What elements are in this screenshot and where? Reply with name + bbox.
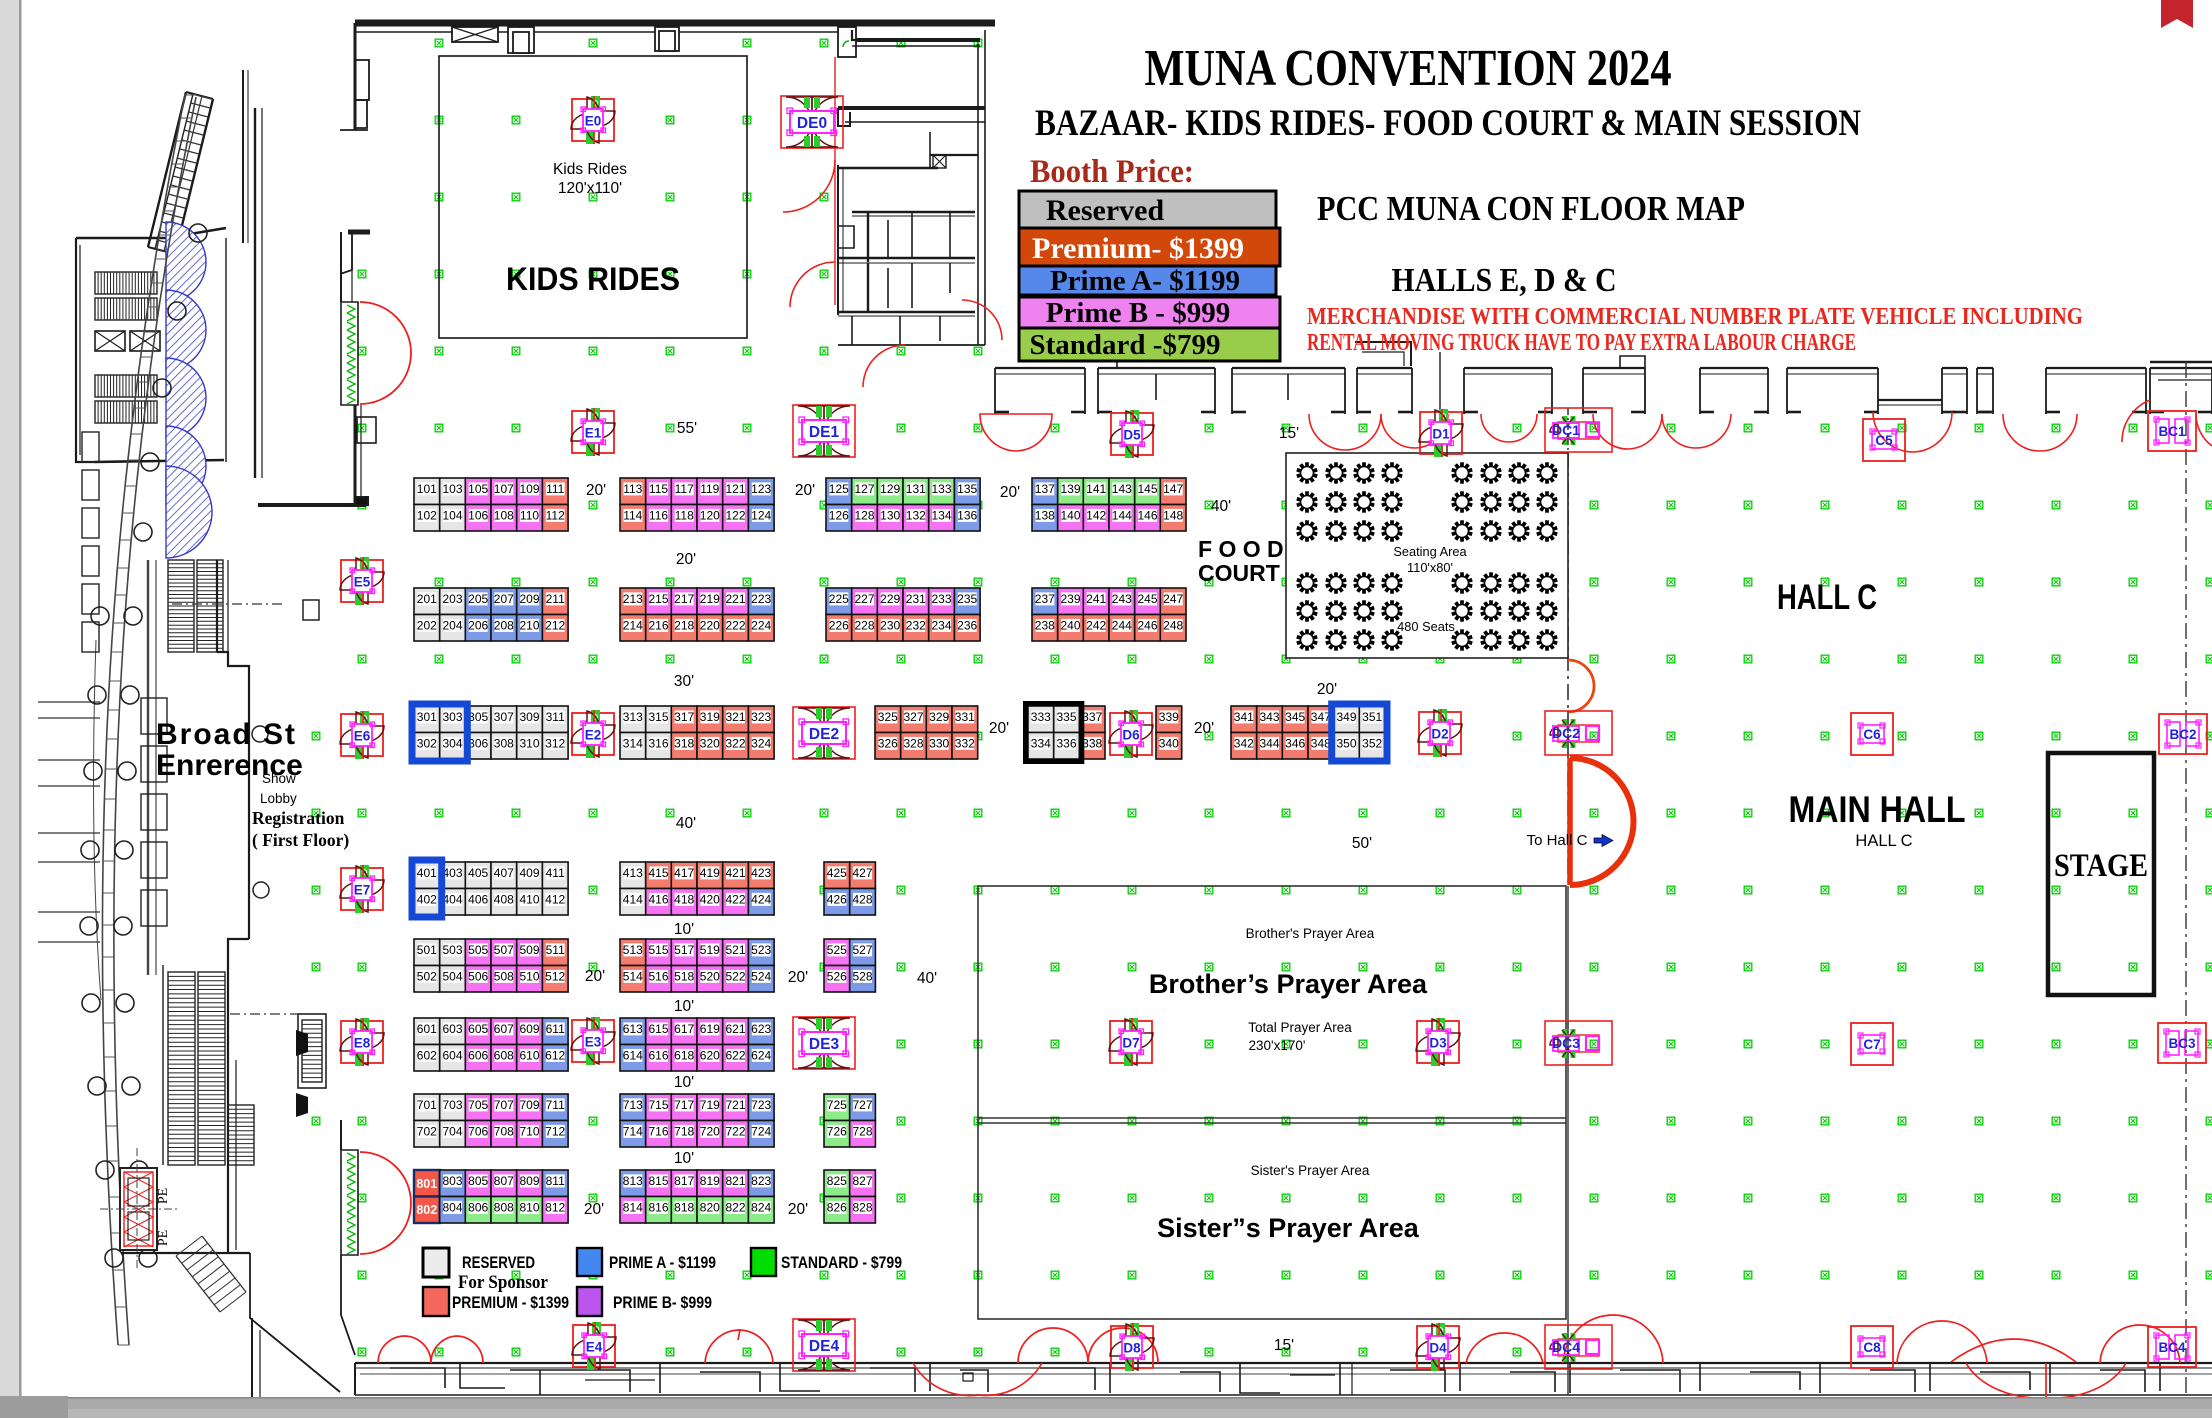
svg-text:341: 341	[1234, 710, 1254, 724]
svg-text:509: 509	[519, 943, 539, 957]
svg-text:134: 134	[931, 508, 951, 522]
svg-text:218: 218	[674, 618, 694, 632]
svg-text:Registration: Registration	[252, 808, 345, 828]
svg-text:823: 823	[751, 1174, 771, 1188]
svg-text:MAIN HALL: MAIN HALL	[1789, 789, 1966, 830]
svg-text:201: 201	[417, 592, 437, 606]
svg-text:507: 507	[494, 943, 514, 957]
svg-text:501: 501	[417, 943, 437, 957]
svg-text:DC1: DC1	[1552, 422, 1580, 438]
svg-text:345: 345	[1285, 710, 1305, 724]
svg-text:E5: E5	[354, 575, 371, 590]
svg-text:206: 206	[468, 618, 488, 632]
svg-text:D8: D8	[1123, 1341, 1141, 1356]
svg-text:805: 805	[468, 1174, 488, 1188]
svg-text:624: 624	[751, 1048, 771, 1062]
svg-text:110: 110	[520, 508, 539, 522]
svg-text:120'x110': 120'x110'	[558, 180, 622, 197]
svg-text:132: 132	[906, 508, 926, 522]
svg-text:602: 602	[417, 1048, 437, 1062]
svg-text:314: 314	[623, 736, 643, 750]
svg-text:316: 316	[648, 736, 668, 750]
svg-text:Seating Area: Seating Area	[1393, 544, 1467, 559]
svg-text:426: 426	[827, 892, 847, 906]
svg-text:312: 312	[545, 736, 565, 750]
svg-text:50': 50'	[1352, 835, 1372, 852]
svg-text:205: 205	[468, 592, 488, 606]
svg-text:143: 143	[1112, 482, 1132, 496]
svg-text:114: 114	[623, 508, 642, 522]
svg-text:106: 106	[468, 508, 488, 522]
svg-text:715: 715	[648, 1098, 668, 1112]
svg-text:826: 826	[827, 1200, 847, 1214]
svg-text:Total Prayer Area: Total Prayer Area	[1248, 1020, 1352, 1035]
svg-text:244: 244	[1112, 618, 1132, 632]
svg-text:410: 410	[519, 892, 539, 906]
svg-text:121: 121	[725, 482, 745, 496]
svg-text:20': 20'	[584, 1201, 604, 1218]
svg-text:10': 10'	[674, 921, 694, 938]
svg-text:D2: D2	[1431, 727, 1448, 742]
svg-text:608: 608	[494, 1048, 514, 1062]
svg-text:135: 135	[957, 482, 977, 496]
svg-text:D1: D1	[1432, 427, 1450, 442]
svg-text:20': 20'	[795, 482, 815, 499]
svg-text:203: 203	[442, 592, 462, 606]
svg-text:601: 601	[417, 1022, 437, 1036]
svg-text:20': 20'	[1194, 720, 1214, 737]
svg-text:220: 220	[700, 618, 720, 632]
svg-text:225: 225	[829, 592, 849, 606]
svg-text:521: 521	[725, 943, 745, 957]
svg-text:E1: E1	[585, 426, 602, 441]
svg-text:505: 505	[468, 943, 488, 957]
svg-text:619: 619	[700, 1022, 720, 1036]
svg-text:409: 409	[519, 866, 539, 880]
svg-text:239: 239	[1060, 592, 1080, 606]
svg-text:480 Seats: 480 Seats	[1397, 619, 1455, 634]
svg-text:815: 815	[648, 1174, 668, 1188]
svg-text:403: 403	[442, 866, 462, 880]
svg-text:714: 714	[623, 1124, 643, 1138]
svg-text:512: 512	[545, 969, 565, 983]
svg-text:425: 425	[827, 866, 847, 880]
svg-text:MERCHANDISE WITH COMMERCIAL: MERCHANDISE WITH COMMERCIAL NUMBER PLATE…	[1307, 304, 2083, 330]
svg-text:806: 806	[468, 1200, 488, 1214]
svg-text:PRIME B- $999: PRIME B- $999	[613, 1293, 712, 1312]
svg-text:725: 725	[827, 1098, 847, 1112]
svg-text:709: 709	[519, 1098, 539, 1112]
svg-text:405: 405	[468, 866, 488, 880]
svg-text:423: 423	[751, 866, 771, 880]
svg-text:226: 226	[829, 618, 849, 632]
svg-text:510: 510	[519, 969, 539, 983]
svg-text:710: 710	[519, 1124, 539, 1138]
svg-text:BC3: BC3	[2168, 1036, 2195, 1051]
svg-text:20': 20'	[1000, 484, 1020, 501]
svg-text:614: 614	[623, 1048, 643, 1062]
svg-text:412: 412	[545, 892, 565, 906]
svg-text:211: 211	[546, 592, 565, 606]
svg-text:706: 706	[468, 1124, 488, 1138]
svg-text:342: 342	[1234, 736, 1254, 750]
svg-text:216: 216	[648, 618, 668, 632]
svg-text:615: 615	[648, 1022, 668, 1036]
svg-text:719: 719	[700, 1098, 720, 1112]
svg-text:202: 202	[417, 618, 437, 632]
svg-text:126: 126	[829, 508, 849, 522]
svg-text:503: 503	[442, 943, 462, 957]
svg-text:20': 20'	[676, 551, 696, 568]
svg-text:508: 508	[494, 969, 514, 983]
svg-text:C5: C5	[1875, 433, 1893, 448]
svg-text:232: 232	[906, 618, 926, 632]
svg-text:331: 331	[955, 710, 975, 724]
svg-text:511: 511	[546, 943, 565, 957]
svg-text:231: 231	[906, 592, 926, 606]
svg-text:20': 20'	[989, 720, 1009, 737]
svg-text:247: 247	[1163, 592, 1183, 606]
svg-text:321: 321	[725, 710, 745, 724]
svg-text:828: 828	[852, 1200, 872, 1214]
svg-text:108: 108	[494, 508, 514, 522]
svg-text:707: 707	[494, 1098, 514, 1112]
svg-text:303: 303	[442, 710, 462, 724]
svg-text:606: 606	[468, 1048, 488, 1062]
svg-text:711: 711	[546, 1098, 565, 1112]
svg-text:224: 224	[751, 618, 771, 632]
svg-text:BC2: BC2	[2169, 727, 2196, 742]
svg-text:616: 616	[648, 1048, 668, 1062]
svg-text:613: 613	[623, 1022, 643, 1036]
svg-text:BAZAAR- KIDS RIDES- FOOD COURT: BAZAAR- KIDS RIDES- FOOD COURT & MAIN SE…	[1035, 103, 1861, 144]
svg-text:BC1: BC1	[2158, 424, 2185, 439]
svg-text:528: 528	[852, 969, 872, 983]
svg-text:820: 820	[700, 1200, 720, 1214]
svg-text:MUNA CONVENTION 2024: MUNA CONVENTION 2024	[1145, 40, 1672, 97]
svg-text:705: 705	[468, 1098, 488, 1112]
svg-text:506: 506	[468, 969, 488, 983]
svg-text:PRIME A - $1199: PRIME A - $1199	[609, 1253, 716, 1272]
svg-text:227: 227	[854, 592, 874, 606]
svg-text:817: 817	[674, 1174, 694, 1188]
svg-text:236: 236	[957, 618, 977, 632]
svg-text:605: 605	[468, 1022, 488, 1036]
svg-text:607: 607	[494, 1022, 514, 1036]
svg-text:230: 230	[880, 618, 900, 632]
svg-text:318: 318	[674, 736, 694, 750]
svg-text:40': 40'	[1211, 498, 1231, 515]
svg-text:237: 237	[1035, 592, 1055, 606]
svg-text:333: 333	[1031, 710, 1051, 724]
svg-text:Prime B - $999: Prime B - $999	[1046, 297, 1230, 329]
svg-text:401: 401	[417, 866, 437, 880]
svg-text:128: 128	[854, 508, 874, 522]
svg-text:DC3: DC3	[1552, 1035, 1580, 1051]
svg-text:Standard -$799: Standard -$799	[1030, 329, 1221, 361]
svg-text:326: 326	[878, 736, 898, 750]
svg-text:144: 144	[1112, 508, 1132, 522]
svg-text:351: 351	[1362, 710, 1382, 724]
svg-text:HALL C: HALL C	[1777, 578, 1877, 617]
svg-text:712: 712	[545, 1124, 565, 1138]
svg-text:824: 824	[751, 1200, 771, 1214]
svg-text:526: 526	[827, 969, 847, 983]
svg-text:701: 701	[417, 1098, 437, 1112]
svg-text:352: 352	[1362, 736, 1382, 750]
svg-text:402: 402	[417, 892, 437, 906]
svg-text:319: 319	[700, 710, 720, 724]
svg-text:221: 221	[725, 592, 745, 606]
svg-text:DE1: DE1	[809, 424, 840, 441]
svg-text:810: 810	[519, 1200, 539, 1214]
svg-text:320: 320	[700, 736, 720, 750]
svg-text:726: 726	[827, 1124, 847, 1138]
svg-text:123: 123	[751, 482, 771, 496]
svg-text:113: 113	[623, 482, 642, 496]
svg-text:PE: PE	[156, 1230, 171, 1246]
svg-text:20': 20'	[788, 969, 808, 986]
svg-text:147: 147	[1163, 482, 1183, 496]
svg-text:PE: PE	[156, 1188, 171, 1204]
svg-text:215: 215	[648, 592, 668, 606]
svg-text:803: 803	[442, 1174, 462, 1188]
svg-text:20': 20'	[585, 968, 605, 985]
svg-text:416: 416	[648, 892, 668, 906]
svg-text:Brother’s Prayer Area: Brother’s Prayer Area	[1149, 969, 1428, 999]
svg-text:133: 133	[931, 482, 951, 496]
svg-text:230'x170': 230'x170'	[1249, 1038, 1306, 1053]
svg-text:142: 142	[1086, 508, 1106, 522]
svg-text:136: 136	[957, 508, 977, 522]
svg-text:C8: C8	[1863, 1340, 1881, 1355]
svg-text:D6: D6	[1122, 728, 1140, 743]
svg-text:408: 408	[494, 892, 514, 906]
svg-text:415: 415	[648, 866, 668, 880]
svg-text:704: 704	[442, 1124, 462, 1138]
svg-text:421: 421	[725, 866, 745, 880]
svg-text:527: 527	[852, 943, 872, 957]
svg-text:Sister's Prayer Area: Sister's Prayer Area	[1251, 1163, 1370, 1178]
svg-text:HALLS E, D & C: HALLS E, D & C	[1392, 262, 1617, 299]
svg-text:10': 10'	[674, 998, 694, 1015]
svg-text:130: 130	[880, 508, 900, 522]
svg-text:20': 20'	[586, 482, 606, 499]
svg-text:414: 414	[623, 892, 643, 906]
svg-text:702: 702	[417, 1124, 437, 1138]
svg-text:816: 816	[648, 1200, 668, 1214]
svg-text:808: 808	[494, 1200, 514, 1214]
svg-text:248: 248	[1163, 618, 1183, 632]
svg-text:618: 618	[674, 1048, 694, 1062]
svg-text:Sister”s Prayer Area: Sister”s Prayer Area	[1157, 1213, 1420, 1243]
svg-text:DE2: DE2	[809, 726, 839, 743]
svg-text:10': 10'	[674, 1150, 694, 1167]
svg-text:407: 407	[494, 866, 514, 880]
svg-text:243: 243	[1112, 592, 1132, 606]
svg-text:518: 518	[674, 969, 694, 983]
svg-text:213: 213	[623, 592, 643, 606]
svg-text:611: 611	[546, 1022, 565, 1036]
svg-text:610: 610	[519, 1048, 539, 1062]
svg-text:127: 127	[854, 482, 874, 496]
svg-text:219: 219	[700, 592, 720, 606]
svg-text:Kids Rides: Kids Rides	[553, 161, 627, 178]
svg-text:119: 119	[700, 482, 719, 496]
svg-text:40': 40'	[917, 970, 937, 987]
svg-text:COURT: COURT	[1198, 560, 1280, 586]
svg-text:827: 827	[852, 1174, 872, 1188]
svg-text:804: 804	[442, 1200, 462, 1214]
svg-text:C6: C6	[1863, 727, 1881, 742]
svg-text:To Hall C: To Hall C	[1527, 832, 1588, 849]
svg-text:111: 111	[546, 482, 565, 496]
svg-text:110'x80': 110'x80'	[1407, 560, 1453, 575]
svg-text:204: 204	[442, 618, 462, 632]
svg-text:514: 514	[623, 969, 643, 983]
svg-text:Lobby: Lobby	[260, 791, 297, 806]
svg-text:419: 419	[700, 866, 720, 880]
svg-text:242: 242	[1086, 618, 1106, 632]
svg-text:40': 40'	[676, 815, 696, 832]
svg-text:620: 620	[700, 1048, 720, 1062]
svg-text:308: 308	[494, 736, 514, 750]
svg-text:115: 115	[649, 482, 668, 496]
svg-text:703: 703	[442, 1098, 462, 1112]
svg-text:238: 238	[1035, 618, 1055, 632]
svg-text:301: 301	[417, 710, 437, 724]
svg-text:Reserved: Reserved	[1046, 194, 1165, 227]
svg-text:E7: E7	[354, 883, 371, 898]
svg-text:807: 807	[494, 1174, 514, 1188]
svg-text:Booth Price:: Booth Price:	[1030, 154, 1194, 190]
svg-text:349: 349	[1336, 710, 1356, 724]
svg-text:622: 622	[725, 1048, 745, 1062]
svg-text:337: 337	[1082, 710, 1102, 724]
svg-text:122: 122	[725, 508, 745, 522]
svg-text:10': 10'	[674, 1074, 694, 1091]
svg-text:245: 245	[1137, 592, 1157, 606]
svg-text:240: 240	[1060, 618, 1080, 632]
svg-text:609: 609	[519, 1022, 539, 1036]
svg-text:RENTAL MOVING TRUCK HAVE TO P: RENTAL MOVING TRUCK HAVE TO PAY EXTRA LA…	[1307, 330, 1856, 356]
svg-text:234: 234	[931, 618, 951, 632]
svg-text:D3: D3	[1429, 1036, 1447, 1051]
svg-text:346: 346	[1285, 736, 1305, 750]
svg-text:809: 809	[519, 1174, 539, 1188]
svg-text:315: 315	[648, 710, 668, 724]
svg-text:241: 241	[1086, 592, 1106, 606]
svg-text:350: 350	[1336, 736, 1356, 750]
svg-text:E0: E0	[585, 114, 602, 129]
svg-text:DE4: DE4	[809, 1338, 840, 1355]
svg-text:101: 101	[417, 482, 437, 496]
svg-text:15': 15'	[1274, 1337, 1294, 1354]
svg-text:306: 306	[468, 736, 488, 750]
svg-text:717: 717	[674, 1098, 694, 1112]
svg-text:For Sponsor: For Sponsor	[458, 1272, 548, 1293]
svg-text:E6: E6	[354, 729, 371, 744]
svg-text:347: 347	[1311, 710, 1331, 724]
svg-text:307: 307	[494, 710, 514, 724]
svg-text:105: 105	[468, 482, 488, 496]
svg-text:322: 322	[725, 736, 745, 750]
svg-text:814: 814	[623, 1200, 643, 1214]
svg-text:821: 821	[725, 1174, 745, 1188]
svg-text:801: 801	[416, 1177, 437, 1191]
svg-text:612: 612	[545, 1048, 565, 1062]
svg-text:117: 117	[675, 482, 694, 496]
svg-text:222: 222	[725, 618, 745, 632]
svg-text:818: 818	[674, 1200, 694, 1214]
svg-text:332: 332	[955, 736, 975, 750]
svg-text:131: 131	[906, 482, 926, 496]
svg-text:716: 716	[648, 1124, 668, 1138]
svg-text:E8: E8	[354, 1036, 371, 1051]
svg-text:328: 328	[903, 736, 923, 750]
svg-text:Brother's Prayer Area: Brother's Prayer Area	[1246, 926, 1375, 941]
svg-text:138: 138	[1035, 508, 1055, 522]
svg-text:120: 120	[700, 508, 720, 522]
svg-text:KIDS RIDES: KIDS RIDES	[506, 261, 680, 297]
svg-text:124: 124	[751, 508, 771, 522]
svg-text:422: 422	[725, 892, 745, 906]
svg-text:107: 107	[494, 482, 514, 496]
svg-text:404: 404	[442, 892, 462, 906]
svg-text:15': 15'	[1279, 425, 1299, 442]
svg-text:125: 125	[829, 482, 849, 496]
svg-text:336: 336	[1056, 736, 1076, 750]
svg-text:335: 335	[1056, 710, 1076, 724]
svg-text:STAGE: STAGE	[2054, 848, 2148, 884]
svg-text:102: 102	[417, 508, 437, 522]
svg-text:522: 522	[725, 969, 745, 983]
svg-text:Show: Show	[262, 771, 296, 786]
svg-text:813: 813	[623, 1174, 643, 1188]
svg-text:520: 520	[700, 969, 720, 983]
svg-text:30': 30'	[674, 673, 694, 690]
svg-text:139: 139	[1060, 482, 1080, 496]
svg-text:324: 324	[751, 736, 771, 750]
svg-text:146: 146	[1137, 508, 1157, 522]
svg-text:723: 723	[751, 1098, 771, 1112]
svg-text:825: 825	[827, 1174, 847, 1188]
svg-text:PREMIUM - $1399: PREMIUM - $1399	[452, 1293, 569, 1312]
svg-text:819: 819	[700, 1174, 720, 1188]
svg-text:334: 334	[1031, 736, 1051, 750]
svg-text:517: 517	[674, 943, 694, 957]
svg-text:Broad St: Broad St	[156, 718, 297, 751]
svg-text:427: 427	[852, 866, 872, 880]
svg-text:323: 323	[751, 710, 771, 724]
svg-text:235: 235	[957, 592, 977, 606]
svg-text:210: 210	[519, 618, 539, 632]
svg-text:C7: C7	[1863, 1037, 1880, 1052]
svg-text:148: 148	[1163, 508, 1183, 522]
svg-text:20': 20'	[1317, 681, 1337, 698]
svg-text:DE3: DE3	[809, 1036, 840, 1053]
svg-text:310: 310	[519, 736, 539, 750]
svg-text:140: 140	[1060, 508, 1080, 522]
svg-text:812: 812	[545, 1200, 565, 1214]
svg-text:728: 728	[852, 1124, 872, 1138]
svg-text:F O O D: F O O D	[1198, 536, 1284, 562]
svg-text:223: 223	[751, 592, 771, 606]
svg-text:515: 515	[648, 943, 668, 957]
svg-text:D7: D7	[1122, 1036, 1139, 1051]
svg-text:305: 305	[468, 710, 488, 724]
svg-text:722: 722	[725, 1124, 745, 1138]
